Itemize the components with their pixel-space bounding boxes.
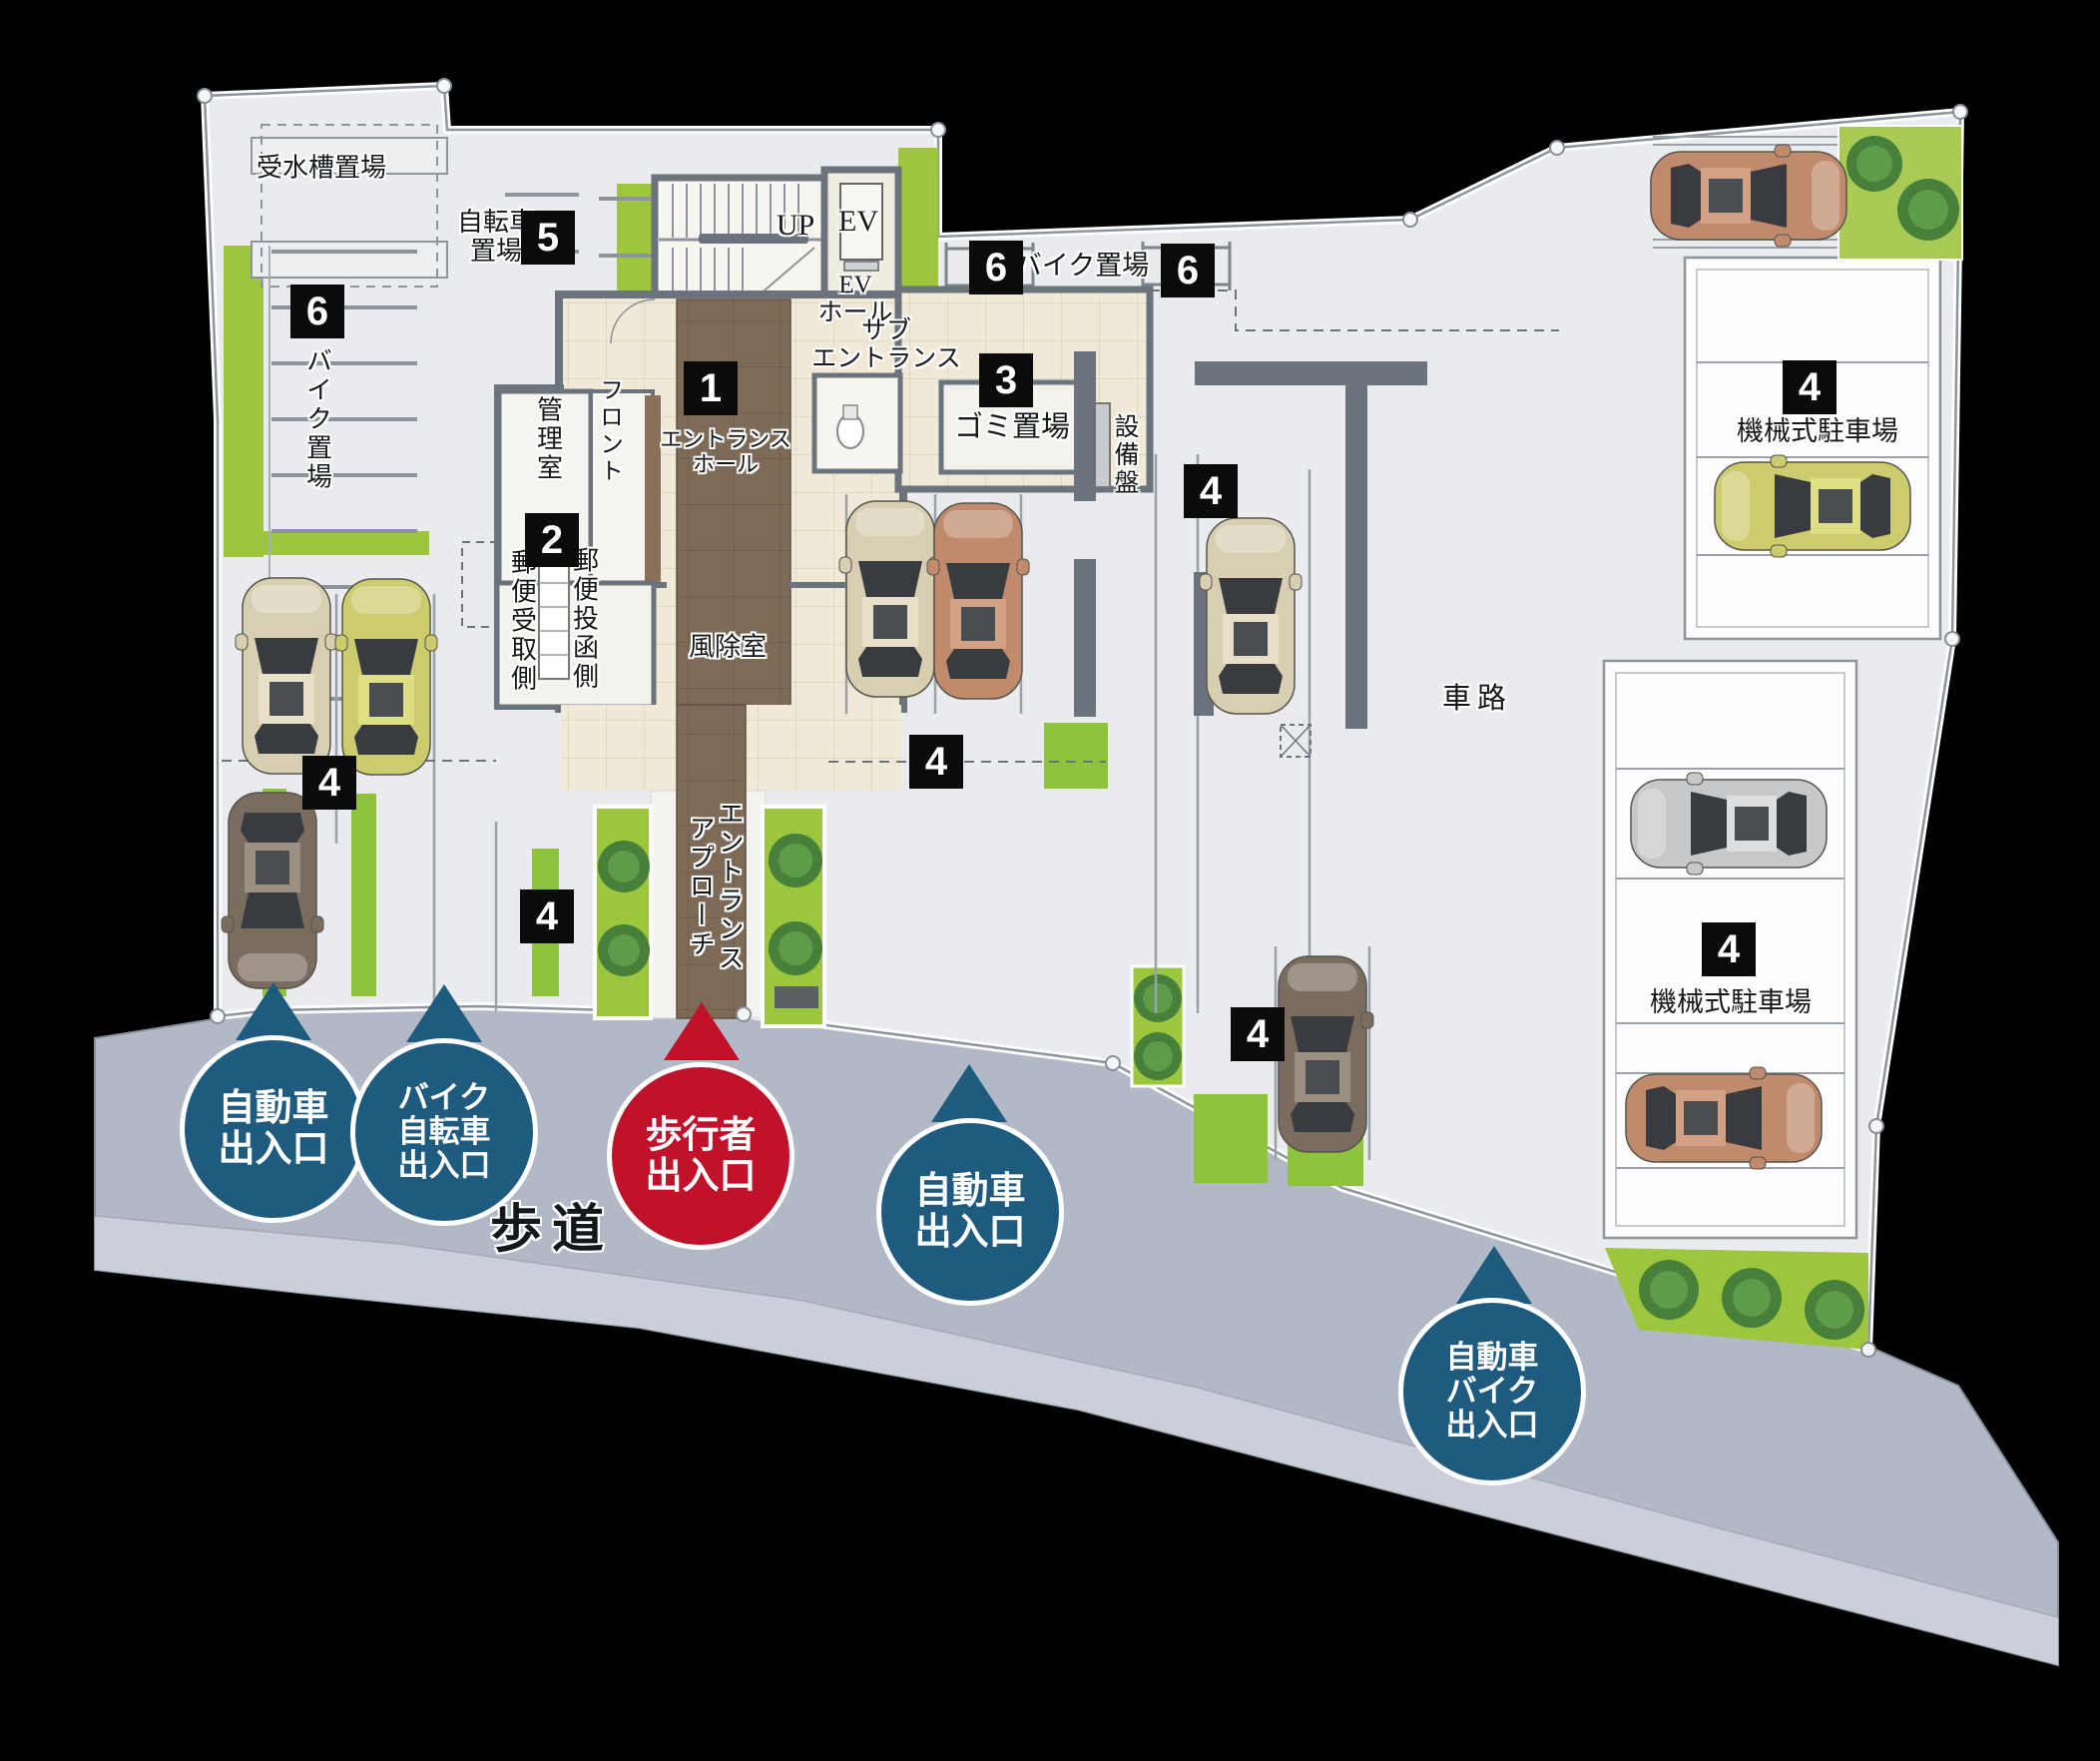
mail-receive-label: 郵便受取側 [507,549,536,694]
mail-post-label: 郵便投函側 [569,547,598,692]
car-icon-yellow-mech [1715,455,1910,557]
car-icon-yellow-left [335,579,437,775]
sidewalk-label: 歩道 [490,1202,614,1260]
entrance-arrow-bike-bicycle [406,984,482,1042]
entrance-arrow-car-left [236,982,311,1040]
entrance-circle-bike-bicycle-line3: 出入口 [398,1149,491,1183]
planter-small-right [1132,966,1184,1086]
badge-bike-top-b: 6 [1161,244,1215,297]
driveway-label: 車路 [1442,683,1512,715]
car-icon-silver-mech [1631,773,1827,875]
entrance-circle-car-bike-right: 自動車 バイク 出入口 [1398,1298,1586,1485]
bike-storage-top-label: バイク置場 [1015,251,1149,281]
badge-bike-top-a: 6 [969,241,1023,294]
sub-entrance-label: サブ エントランス [811,317,961,373]
badge-parking-center: 4 [909,735,963,789]
front-desk-label: フロント [595,377,622,485]
car-icon-cream-right [1200,518,1302,714]
grass-top-right [1838,126,1962,260]
entrance-circle-pedestrian: 歩行者 出入口 [607,1062,794,1250]
badge-garbage: 3 [979,353,1033,407]
entrance-hall-label-line1: エントランス [660,427,791,452]
entrance-approach-label-line2: アプローチ [686,800,715,973]
entrance-circle-car-left-line1: 自動車 [219,1088,329,1129]
water-tank-label: 受水槽置場 [257,153,386,182]
sub-entrance-label-line1: サブ [811,317,961,345]
car-icon-brown-bottom [1272,956,1373,1152]
ev-hall-label-line1: EV [817,272,892,299]
badge-parking-left: 4 [302,756,356,810]
windbreak-room-label: 風除室 [689,632,767,661]
equipment-panel-label: 設備盤 [1110,413,1138,497]
manager-room-label: 管理室 [533,396,562,483]
badge-mail: 2 [525,513,579,567]
mech-parking-top-box [1685,258,1940,639]
car-icon-copper-mech [1626,1067,1822,1169]
entrance-circle-bike-bicycle: バイク 自転車 出入口 [350,1038,538,1226]
garbage-label: ゴミ置場 [954,411,1070,443]
entrance-approach-label: エントランス アプローチ [686,800,744,973]
entrance-arrow-pedestrian [664,1002,740,1060]
entrance-circle-car-bike-right-line3: 出入口 [1446,1409,1539,1443]
badge-bicycle: 5 [521,211,575,265]
entrance-circle-bike-bicycle-line2: 自転車 [398,1115,491,1149]
up-label: UP [777,209,814,243]
car-icon-copper-center [927,503,1029,699]
entrance-circle-car-left: 自動車 出入口 [180,1035,367,1223]
entrance-circle-car-bike-right-line1: 自動車 [1446,1341,1539,1375]
badge-mech-bottom: 4 [1702,922,1756,976]
car-icon-copper-top-right [1651,145,1846,247]
entrance-circle-car-center-line1: 自動車 [915,1171,1026,1212]
entrance-hall-label: エントランス ホール [660,427,791,476]
ev-label: EV [838,205,878,239]
badge-bike-left: 6 [290,285,344,338]
planter-right [763,807,824,1026]
badge-parking-center-right: 4 [1184,464,1238,518]
mech-parking-top-label: 機械式駐車場 [1737,416,1898,446]
entrance-circle-pedestrian-line1: 歩行者 [646,1115,757,1156]
car-icon-cream-left [236,578,337,774]
badge-parking-bottom-right: 4 [1231,1007,1285,1061]
badge-mech-top: 4 [1783,360,1837,414]
sub-entrance-label-line2: エントランス [811,345,961,373]
planter-left [595,807,651,1018]
mech-parking-bottom-label: 機械式駐車場 [1650,987,1812,1017]
entrance-hall-label-line2: ホール [660,452,791,477]
badge-parking-bottom-left: 4 [520,889,574,943]
entrance-circle-bike-bicycle-line1: バイク [398,1081,490,1115]
car-icon-cream-center [839,501,941,697]
badge-entrance-hall: 1 [684,361,738,415]
car-icon-brown-left [222,793,323,988]
entrance-circle-pedestrian-line2: 出入口 [646,1156,757,1197]
entrance-circle-car-center: 自動車 出入口 [876,1118,1064,1306]
entrance-circle-car-center-line2: 出入口 [915,1212,1026,1253]
entrance-circle-car-left-line2: 出入口 [219,1129,329,1170]
site-plan: 受水槽置場 自転車 置場 バイク置場 UP EV EV ホール サブ エントラン… [0,0,2100,1761]
entrance-circle-car-bike-right-line2: バイク [1446,1375,1538,1409]
hedge-left [224,246,263,557]
entrance-arrow-car-bike-right [1456,1246,1532,1304]
entrance-arrow-car-center [931,1064,1007,1122]
entrance-approach-label-line1: エントランス [715,800,744,973]
bike-storage-left-label: バイク置場 [302,347,331,492]
